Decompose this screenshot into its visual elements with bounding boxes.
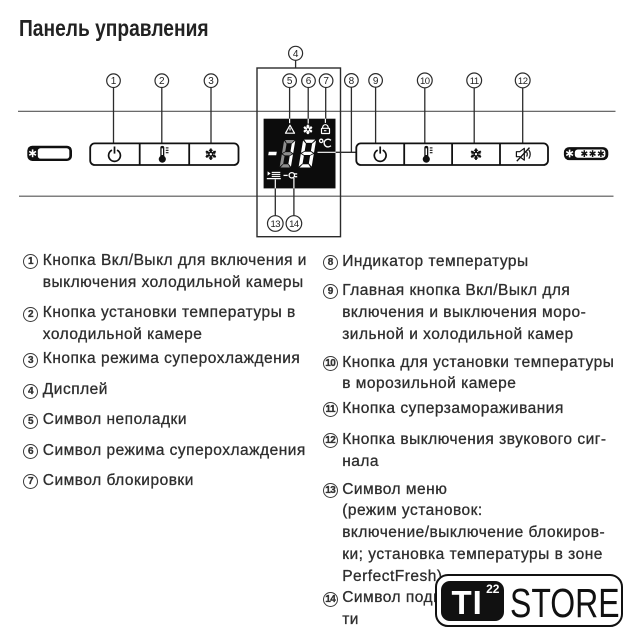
svg-text:4: 4 bbox=[293, 49, 299, 60]
svg-text:14: 14 bbox=[289, 219, 299, 230]
svg-text:11: 11 bbox=[470, 76, 479, 87]
svg-text:7: 7 bbox=[323, 76, 329, 87]
svg-text:5: 5 bbox=[287, 76, 293, 87]
svg-text:13: 13 bbox=[271, 219, 281, 230]
svg-text:3: 3 bbox=[208, 76, 214, 87]
svg-text:1: 1 bbox=[111, 76, 117, 87]
svg-text:2: 2 bbox=[159, 76, 165, 87]
svg-text:12: 12 bbox=[518, 76, 528, 87]
svg-text:9: 9 bbox=[373, 76, 379, 87]
svg-text:10: 10 bbox=[420, 76, 430, 87]
svg-text:8: 8 bbox=[349, 76, 355, 87]
svg-text:6: 6 bbox=[306, 76, 312, 87]
